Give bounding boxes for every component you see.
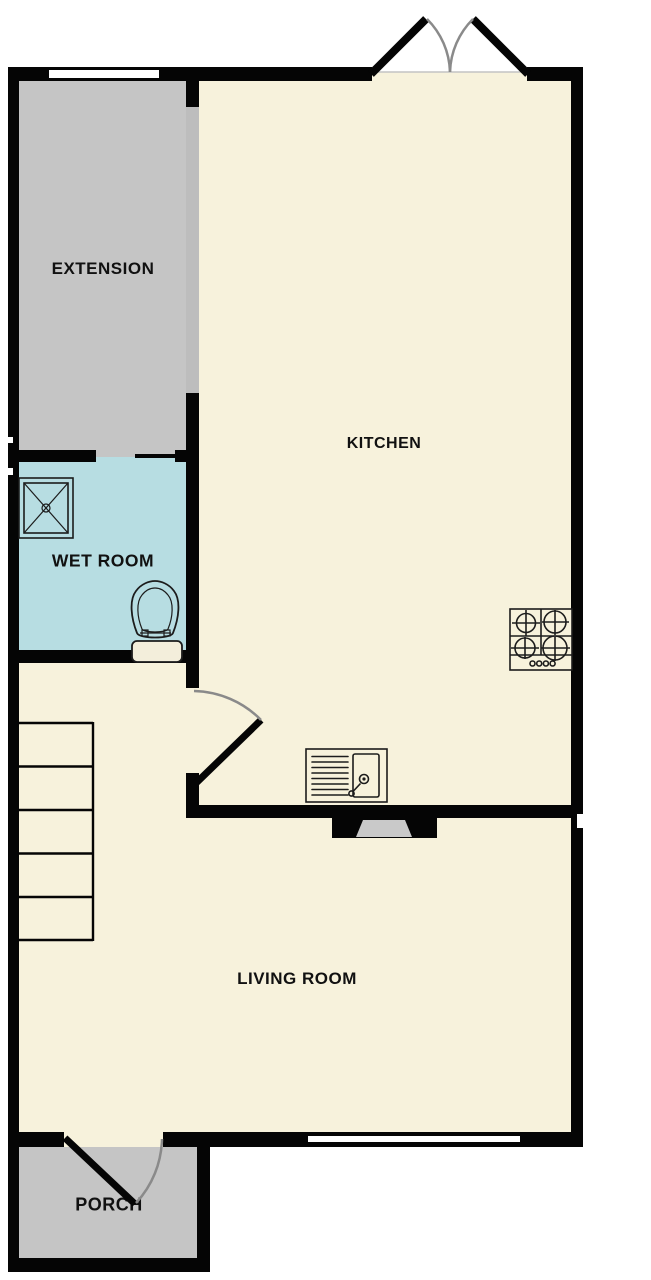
toilet-icon — [132, 581, 182, 662]
front-door-icon — [65, 1138, 162, 1204]
sink-unit-icon — [306, 749, 387, 802]
fixtures-layer — [0, 0, 651, 1280]
fireplace-icon — [356, 820, 412, 837]
internal-door-icon — [192, 691, 261, 787]
staircase — [19, 722, 93, 941]
french-doors-icon — [371, 19, 528, 74]
shower-tray-icon — [19, 478, 73, 538]
gas-hob-icon — [510, 609, 572, 670]
floor-plan: EXTENSION KITCHEN WET ROOM LIVING ROOM P… — [0, 0, 651, 1280]
